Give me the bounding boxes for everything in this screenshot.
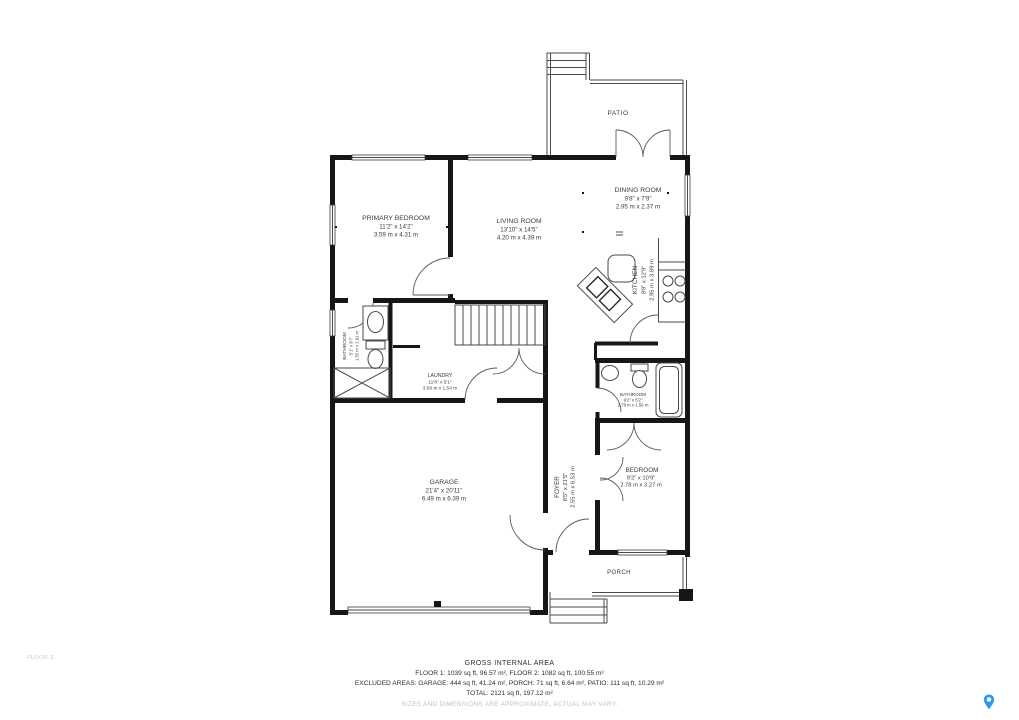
cooktop bbox=[663, 276, 685, 302]
room-label-foyer: FOYER 8'5" x 21'5" 2.55 m x 6.53 m bbox=[554, 466, 577, 508]
room-name: BATHROOM bbox=[620, 392, 646, 397]
area-disclaimer: SIZES AND DIMENSIONS ARE APPROXIMATE, AC… bbox=[0, 700, 1019, 710]
front-door bbox=[556, 519, 589, 552]
room-dim-metric: 2.95 m x 3.89 m bbox=[650, 259, 656, 301]
floor-number-label: FLOOR 2 bbox=[27, 655, 54, 661]
room-label-patio: PATIO bbox=[607, 110, 628, 117]
room-label-laundry: LAUNDRY 11'8" x 5'1" 3.56 m x 1.54 m bbox=[423, 373, 457, 392]
room-dim-metric: 2.55 m x 6.53 m bbox=[571, 466, 577, 508]
room-label-primary-bedroom: PRIMARY BEDROOM 11'2" x 14'2" 3.59 m x 4… bbox=[362, 215, 430, 239]
room-name: BATHROOM bbox=[342, 332, 348, 359]
toilet bbox=[366, 341, 385, 369]
room-label-porch: PORCH bbox=[607, 570, 631, 576]
room-label-garage: GARAGE 21'4" x 20'11" 6.49 m x 6.39 m bbox=[422, 479, 466, 503]
room-label-kitchen: KITCHEN 9'8" x 12'9" 2.95 m x 3.89 m bbox=[632, 259, 656, 301]
area-excluded-line: EXCLUDED AREAS: GARAGE: 444 sq ft, 41.24… bbox=[0, 679, 1019, 689]
area-floors-line: FLOOR 1: 1039 sq ft, 96.57 m², FLOOR 2: … bbox=[0, 669, 1019, 679]
room-dim-metric: 6.49 m x 6.39 m bbox=[422, 496, 466, 503]
room-name: PATIO bbox=[607, 110, 628, 117]
room-dim-imperial: 8'5" x 21'5" bbox=[563, 473, 569, 502]
room-name: DINING ROOM bbox=[615, 187, 662, 194]
porch-steps bbox=[550, 592, 607, 623]
room-name: PRIMARY BEDROOM bbox=[362, 215, 430, 222]
bathtub bbox=[656, 363, 682, 417]
vent-symbol bbox=[616, 232, 623, 235]
room-dim-imperial: 9'8" x 12'9" bbox=[642, 266, 648, 295]
brand-pin-icon bbox=[983, 694, 995, 710]
patio-stairs bbox=[547, 61, 586, 75]
room-name: PORCH bbox=[607, 570, 631, 576]
room-dim-metric: 2.95 m x 2.37 m bbox=[616, 204, 660, 211]
window bbox=[685, 175, 690, 216]
patio-french-doors bbox=[616, 130, 670, 157]
sink bbox=[602, 366, 619, 381]
bedroom-doors bbox=[600, 457, 623, 501]
porch-corner-post bbox=[679, 589, 693, 601]
porch-outline bbox=[550, 557, 693, 623]
garage-door-mark bbox=[434, 601, 441, 607]
hall-closet-doors bbox=[493, 348, 545, 374]
area-total-line: TOTAL: 2121 sq ft, 197.12 m² bbox=[0, 689, 1019, 699]
room-name: LAUNDRY bbox=[428, 373, 453, 379]
room-name: BEDROOM bbox=[625, 467, 658, 474]
room-name: FOYER bbox=[554, 476, 561, 498]
garage-entry-door bbox=[510, 515, 545, 550]
staircase bbox=[455, 305, 545, 345]
primary-bedroom-door bbox=[413, 258, 450, 295]
window bbox=[618, 550, 667, 555]
toilet bbox=[631, 364, 648, 388]
window bbox=[352, 155, 425, 160]
area-summary-title: GROSS INTERNAL AREA bbox=[0, 659, 1019, 669]
floor-plan-page: PATIO DINING ROOM 9'8" x 7'9" 2.95 m x 2… bbox=[0, 0, 1019, 720]
room-label-main-bathroom: BATHROOM 5'1" x 9'7" 1.55 m x 2.91 m bbox=[342, 330, 360, 361]
window bbox=[330, 205, 335, 245]
kitchen-table bbox=[608, 255, 635, 282]
room-name: LIVING ROOM bbox=[496, 218, 542, 225]
second-bathroom-fixtures bbox=[602, 363, 683, 417]
room-dim-imperial: 11'2" x 14'2" bbox=[379, 224, 412, 231]
room-label-bedroom: BEDROOM 9'2" x 10'9" 2.78 m x 3.27 m bbox=[620, 467, 662, 489]
room-dim-metric: 2.78 m x 1.56 m bbox=[618, 403, 649, 408]
room-dim-metric: 4.20 m x 4.39 m bbox=[497, 235, 541, 242]
window bbox=[330, 310, 335, 336]
room-label-second-bathroom: BATHROOM 9'2" x 5'2" 2.78 m x 1.56 m bbox=[618, 392, 649, 408]
room-dim-metric: 1.55 m x 2.91 m bbox=[355, 330, 360, 361]
sink bbox=[368, 312, 384, 333]
room-dim-imperial: 9'2" x 10'9" bbox=[627, 476, 656, 482]
room-dim-imperial: 13'10" x 14'5" bbox=[500, 227, 537, 234]
room-label-dining-room: DINING ROOM 9'8" x 7'9" 2.95 m x 2.37 m bbox=[615, 187, 662, 211]
patio-outline bbox=[547, 53, 687, 155]
room-dim-imperial: 21'4" x 20'11" bbox=[426, 488, 463, 495]
area-summary: GROSS INTERNAL AREA FLOOR 1: 1039 sq ft,… bbox=[0, 659, 1019, 710]
room-dim-metric: 2.78 m x 3.27 m bbox=[620, 483, 662, 489]
room-name: GARAGE bbox=[429, 479, 459, 486]
pantry-door bbox=[630, 315, 658, 343]
room-label-living-room: LIVING ROOM 13'10" x 14'5" 4.20 m x 4.39… bbox=[496, 218, 542, 242]
room-dim-imperial: 9'8" x 7'9" bbox=[624, 196, 651, 203]
room-dim-metric: 3.56 m x 1.54 m bbox=[423, 386, 457, 392]
second-bathroom-door bbox=[597, 388, 621, 412]
closet-x bbox=[334, 368, 390, 398]
room-dim-imperial: 11'8" x 5'1" bbox=[428, 380, 452, 386]
laundry-door bbox=[465, 368, 497, 400]
room-name: KITCHEN bbox=[632, 265, 639, 294]
room-dim-metric: 3.59 m x 4.31 m bbox=[374, 232, 418, 239]
room-dim-imperial: 5'1" x 9'7" bbox=[349, 336, 354, 355]
floor-plan-drawing: PATIO DINING ROOM 9'8" x 7'9" 2.95 m x 2… bbox=[0, 0, 1019, 720]
window bbox=[468, 155, 532, 160]
garage-door bbox=[348, 601, 530, 613]
bedroom-closet-doors bbox=[607, 423, 661, 450]
